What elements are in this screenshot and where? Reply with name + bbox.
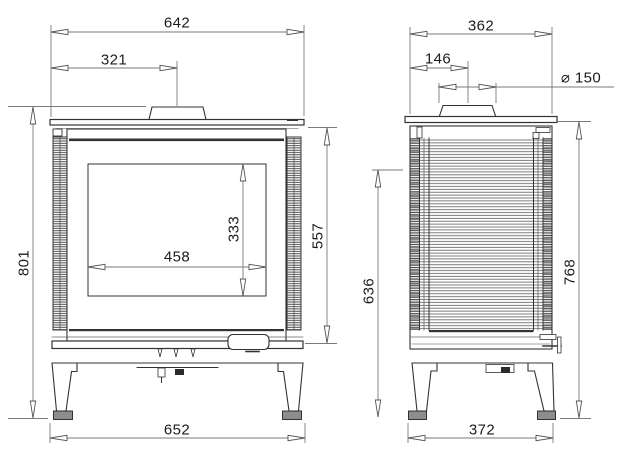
front-left-foot (54, 411, 73, 420)
front-flue-collar (149, 107, 206, 120)
front-right-foot (283, 411, 302, 420)
side-louver-panel (411, 138, 552, 330)
front-door-handle (228, 335, 269, 350)
dim-side-depth-base: 372 (469, 423, 495, 438)
side-top-plate (405, 117, 557, 123)
front-top-plate (50, 120, 304, 126)
front-right-leg (278, 363, 303, 411)
dim-side-flue-offset: 146 (425, 52, 451, 67)
dim-front-width-base: 652 (164, 423, 190, 438)
dim-front-glass-width: 458 (164, 250, 190, 265)
dim-front-glass-height: 333 (227, 216, 242, 242)
side-front-leg (412, 363, 437, 411)
dim-front-flue-offset: 321 (101, 53, 127, 68)
dim-side-height-body: 768 (563, 259, 578, 285)
dim-front-body-height: 557 (311, 223, 326, 249)
side-rear-foot (538, 411, 556, 420)
dim-side-depth-top: 362 (468, 19, 494, 34)
dim-front-height-overall: 801 (17, 250, 32, 276)
side-view (405, 106, 561, 420)
side-latch-bracket (540, 335, 556, 340)
dim-front-width-top: 642 (164, 16, 190, 31)
front-left-leg (52, 363, 77, 411)
dim-side-height-mid: 636 (362, 278, 377, 304)
side-rear-leg (528, 363, 554, 411)
stove-technical-drawing: 642 321 801 458 333 557 652 362 146 ⌀ 15… (0, 0, 624, 460)
dim-side-flue-diameter: ⌀ 150 (561, 71, 601, 86)
side-latch-pin (558, 337, 562, 353)
side-flue-collar (439, 106, 496, 118)
side-front-foot (409, 411, 427, 420)
